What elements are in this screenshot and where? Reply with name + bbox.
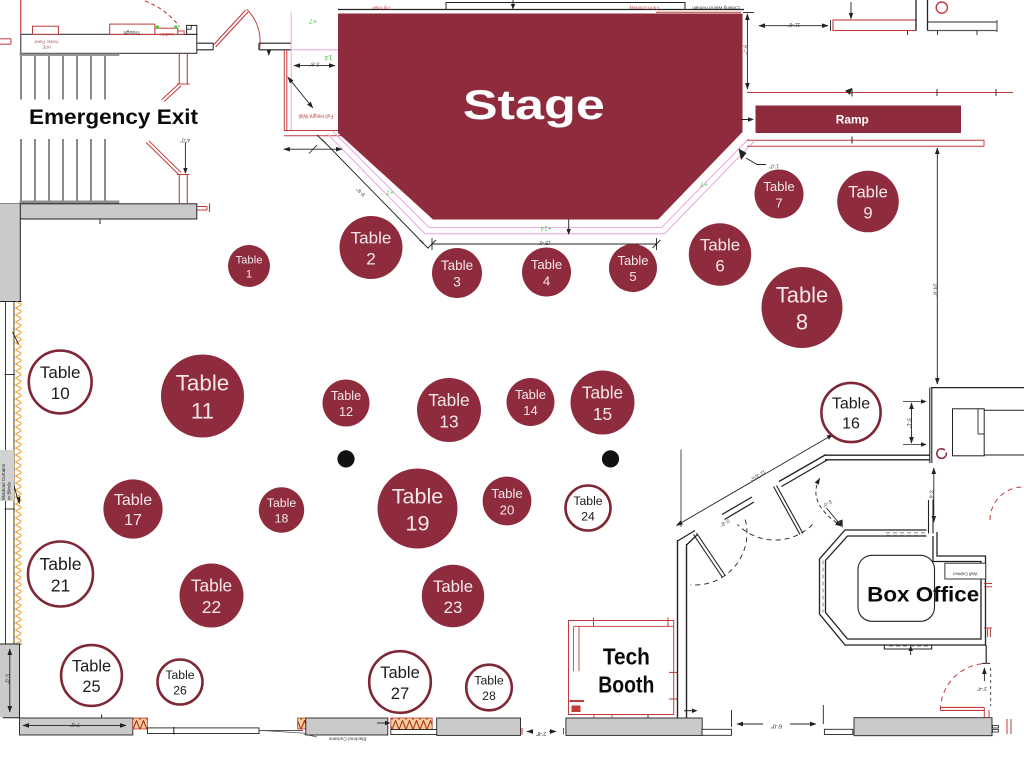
svg-text:Table: Table [392,483,444,508]
svg-text:Table: Table [441,258,473,273]
svg-text:Fill in Doorway: Fill in Doorway [629,6,659,11]
svg-text:Table: Table [191,575,232,595]
svg-text:Table: Table [72,658,111,676]
svg-text:21: 21 [51,576,71,596]
svg-text:5: 5 [629,269,636,284]
svg-text:3: 3 [453,275,461,290]
svg-text:23: 23 [444,598,463,617]
svg-text:Ramp: Ramp [836,113,869,127]
svg-text:Table: Table [40,363,81,382]
svg-text:Existing Wall to Remain: Existing Wall to Remain [692,6,740,11]
svg-text:14: 14 [523,403,537,418]
svg-text:13: 13 [439,412,458,432]
svg-text:26: 26 [173,683,187,697]
svg-text:20: 20 [500,502,515,517]
svg-text:2: 2 [366,250,375,269]
svg-text:+7: +7 [309,17,317,24]
svg-text:25: 25 [82,678,100,696]
svg-text:Table: Table [428,390,469,410]
svg-text:6: 6 [715,257,724,276]
svg-text:Table: Table [433,577,473,596]
svg-text:Table: Table [267,496,297,510]
svg-text:Table: Table [832,396,870,413]
svg-text:Table: Table [351,229,392,248]
svg-text:9: 9 [863,203,872,222]
svg-text:Table: Table [582,382,623,402]
svg-text:Ply Riser: Ply Riser [372,6,391,11]
svg-text:27: 27 [391,684,409,703]
svg-text:Box Office: Box Office [867,583,979,607]
svg-text:Table: Table [474,674,504,688]
svg-text:House Panel: House Panel [34,40,58,45]
svg-text:Booth: Booth [598,672,654,698]
svg-text:Table: Table [617,253,648,268]
svg-text:Table: Table [380,663,420,682]
svg-text:Trough: Trough [123,29,140,35]
svg-text:Table: Table [763,179,795,194]
svg-text:15: 15 [593,404,612,424]
svg-text:Emergency Exit: Emergency Exit [29,106,198,129]
svg-text:10: 10 [51,384,70,403]
svg-text:3'-1": 3'-1" [905,418,911,428]
svg-text:+14: +14 [540,225,551,232]
svg-text:15'-0": 15'-0" [538,239,551,245]
svg-text:11: 11 [191,399,214,424]
svg-text:5'-0": 5'-0" [4,674,10,684]
svg-text:22: 22 [202,597,221,617]
svg-text:19: 19 [405,510,429,535]
svg-text:Wall Cabinet: Wall Cabinet [952,572,977,577]
svg-text:+7: +7 [386,188,394,195]
svg-text:3'-4": 3'-4" [977,685,987,691]
svg-text:7: 7 [775,195,782,210]
svg-text:Table: Table [700,236,740,255]
svg-text:9'-7": 9'-7" [742,45,748,55]
svg-text:24: 24 [581,509,595,523]
svg-text:2'-8": 2'-8" [536,730,546,736]
svg-text:Table: Table [331,389,361,403]
svg-text:Tech: Tech [603,644,650,670]
svg-text:Table: Table [176,371,230,396]
svg-text:1: 1 [246,269,252,281]
svg-text:3'-6": 3'-6" [928,490,934,500]
svg-text:14: 14 [325,54,333,61]
svg-text:+7: +7 [700,180,708,187]
svg-text:18: 18 [275,511,289,525]
svg-text:Table: Table [776,282,828,307]
svg-text:Table: Table [114,492,152,509]
svg-text:Table: Table [573,494,602,508]
svg-text:Blackout Curtains: Blackout Curtains [328,736,366,742]
svg-text:7'-5": 7'-5" [70,721,80,727]
svg-text:4'-0": 4'-0" [180,137,190,143]
svg-text:or Blinds: or Blinds [7,481,12,500]
svg-text:Table: Table [235,254,262,266]
svg-text:16: 16 [842,416,860,433]
svg-text:Table: Table [165,668,194,682]
svg-text:11'-6": 11'-6" [787,21,800,27]
svg-text:17: 17 [124,512,142,529]
svg-text:Table: Table [515,387,546,402]
svg-text:Ladder: Ladder [159,32,174,37]
svg-text:28: 28 [482,689,496,703]
svg-text:3'-6": 3'-6" [309,61,319,67]
svg-text:Table: Table [39,554,81,574]
svg-text:6'-0": 6'-0" [771,723,782,729]
svg-text:Table: Table [491,486,523,501]
svg-text:8: 8 [796,310,808,335]
svg-text:Table: Table [531,257,563,272]
svg-text:12: 12 [339,405,353,419]
svg-text:Blackout Curtains: Blackout Curtains [1,463,6,500]
svg-text:Full Height Wall: Full Height Wall [299,113,334,119]
svg-text:4: 4 [543,273,550,288]
svg-text:Stage: Stage [463,81,605,128]
svg-text:24'-8": 24'-8" [932,283,938,296]
svg-text:1'-0": 1'-0" [769,163,779,169]
svg-text:Table: Table [848,183,888,202]
svg-text:HPE: HPE [42,45,51,50]
